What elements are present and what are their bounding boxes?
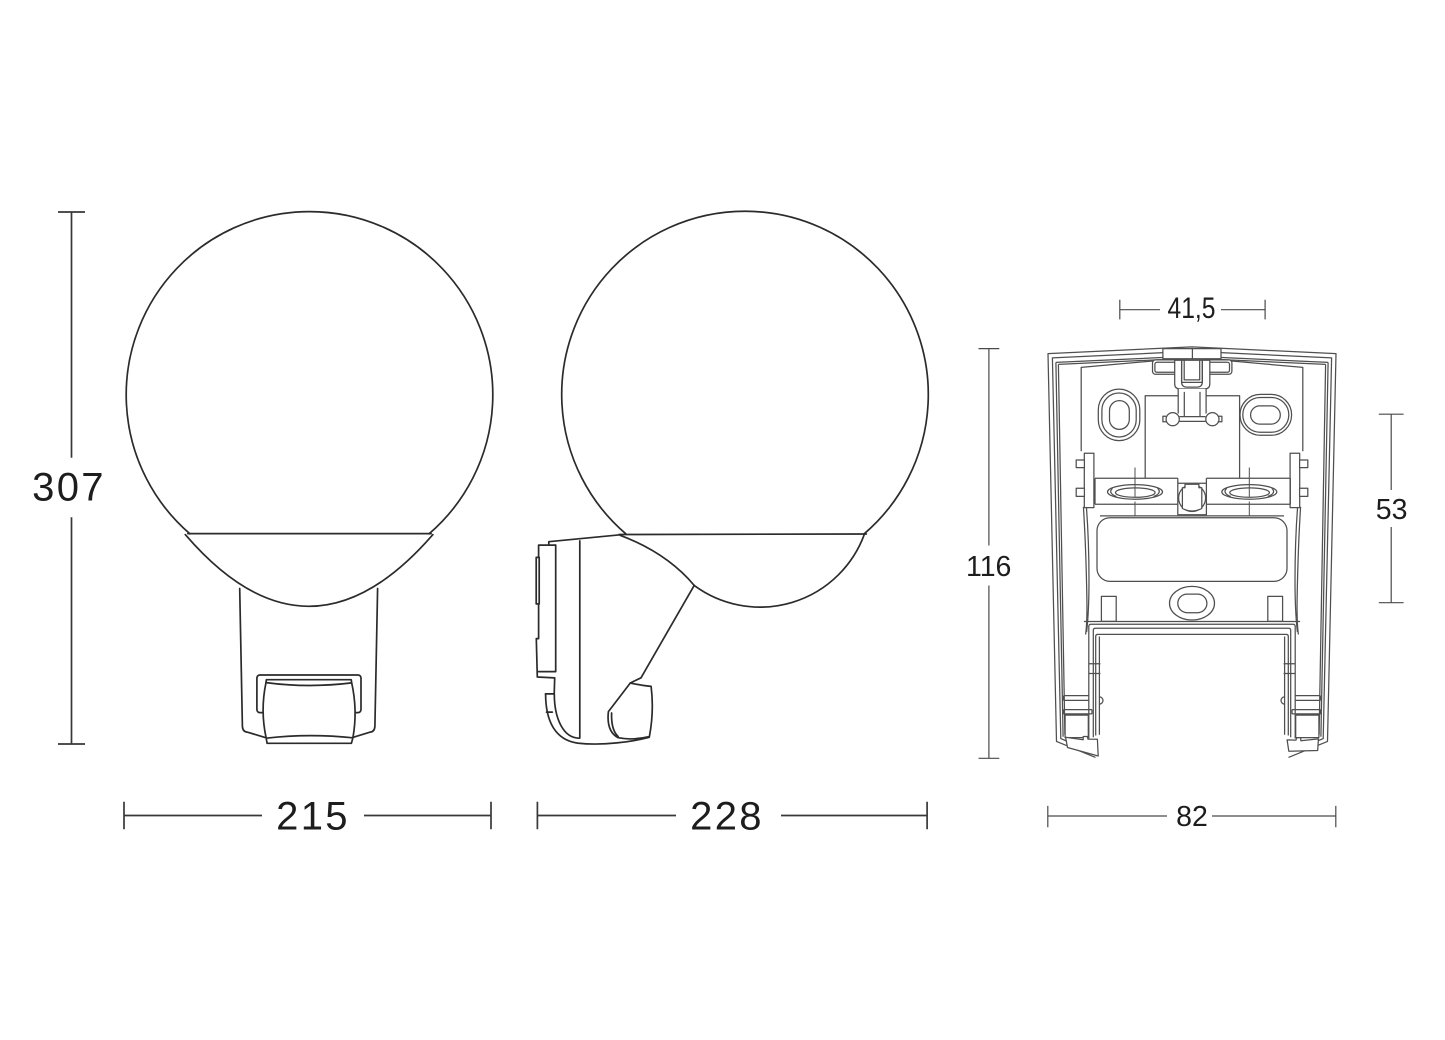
svg-text:116: 116 bbox=[966, 551, 1011, 583]
svg-text:82: 82 bbox=[1176, 801, 1208, 833]
svg-text:228: 228 bbox=[690, 795, 764, 839]
svg-text:215: 215 bbox=[276, 795, 350, 839]
svg-text:53: 53 bbox=[1376, 494, 1408, 526]
svg-text:307: 307 bbox=[32, 466, 106, 510]
svg-text:41,5: 41,5 bbox=[1168, 292, 1216, 325]
